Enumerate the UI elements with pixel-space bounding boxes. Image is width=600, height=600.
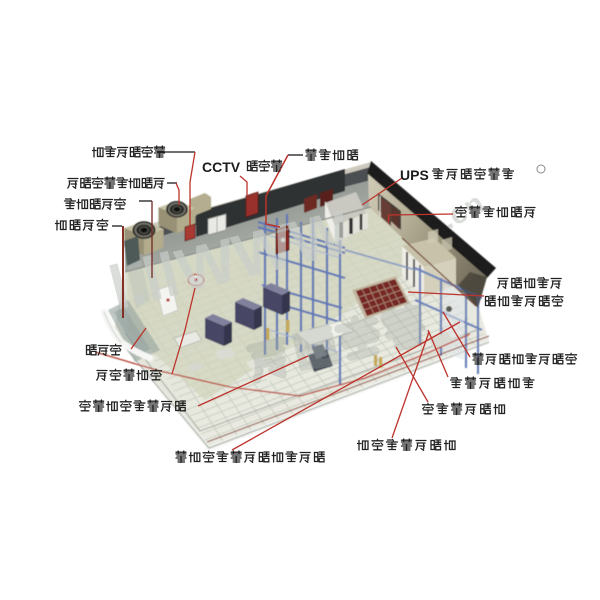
- svg-text:UPS: UPS: [400, 167, 429, 183]
- svg-text:CCTV: CCTV: [202, 159, 241, 175]
